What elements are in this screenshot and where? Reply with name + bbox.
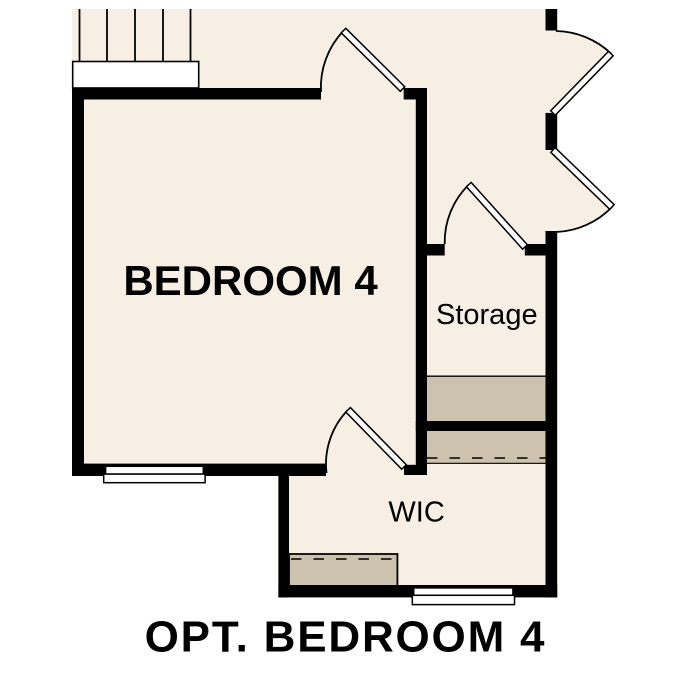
svg-text:BEDROOM 4: BEDROOM 4	[123, 257, 378, 304]
svg-text:WIC: WIC	[388, 497, 444, 529]
svg-text:Storage: Storage	[436, 299, 538, 331]
svg-text:OPT. BEDROOM 4: OPT. BEDROOM 4	[145, 613, 547, 662]
